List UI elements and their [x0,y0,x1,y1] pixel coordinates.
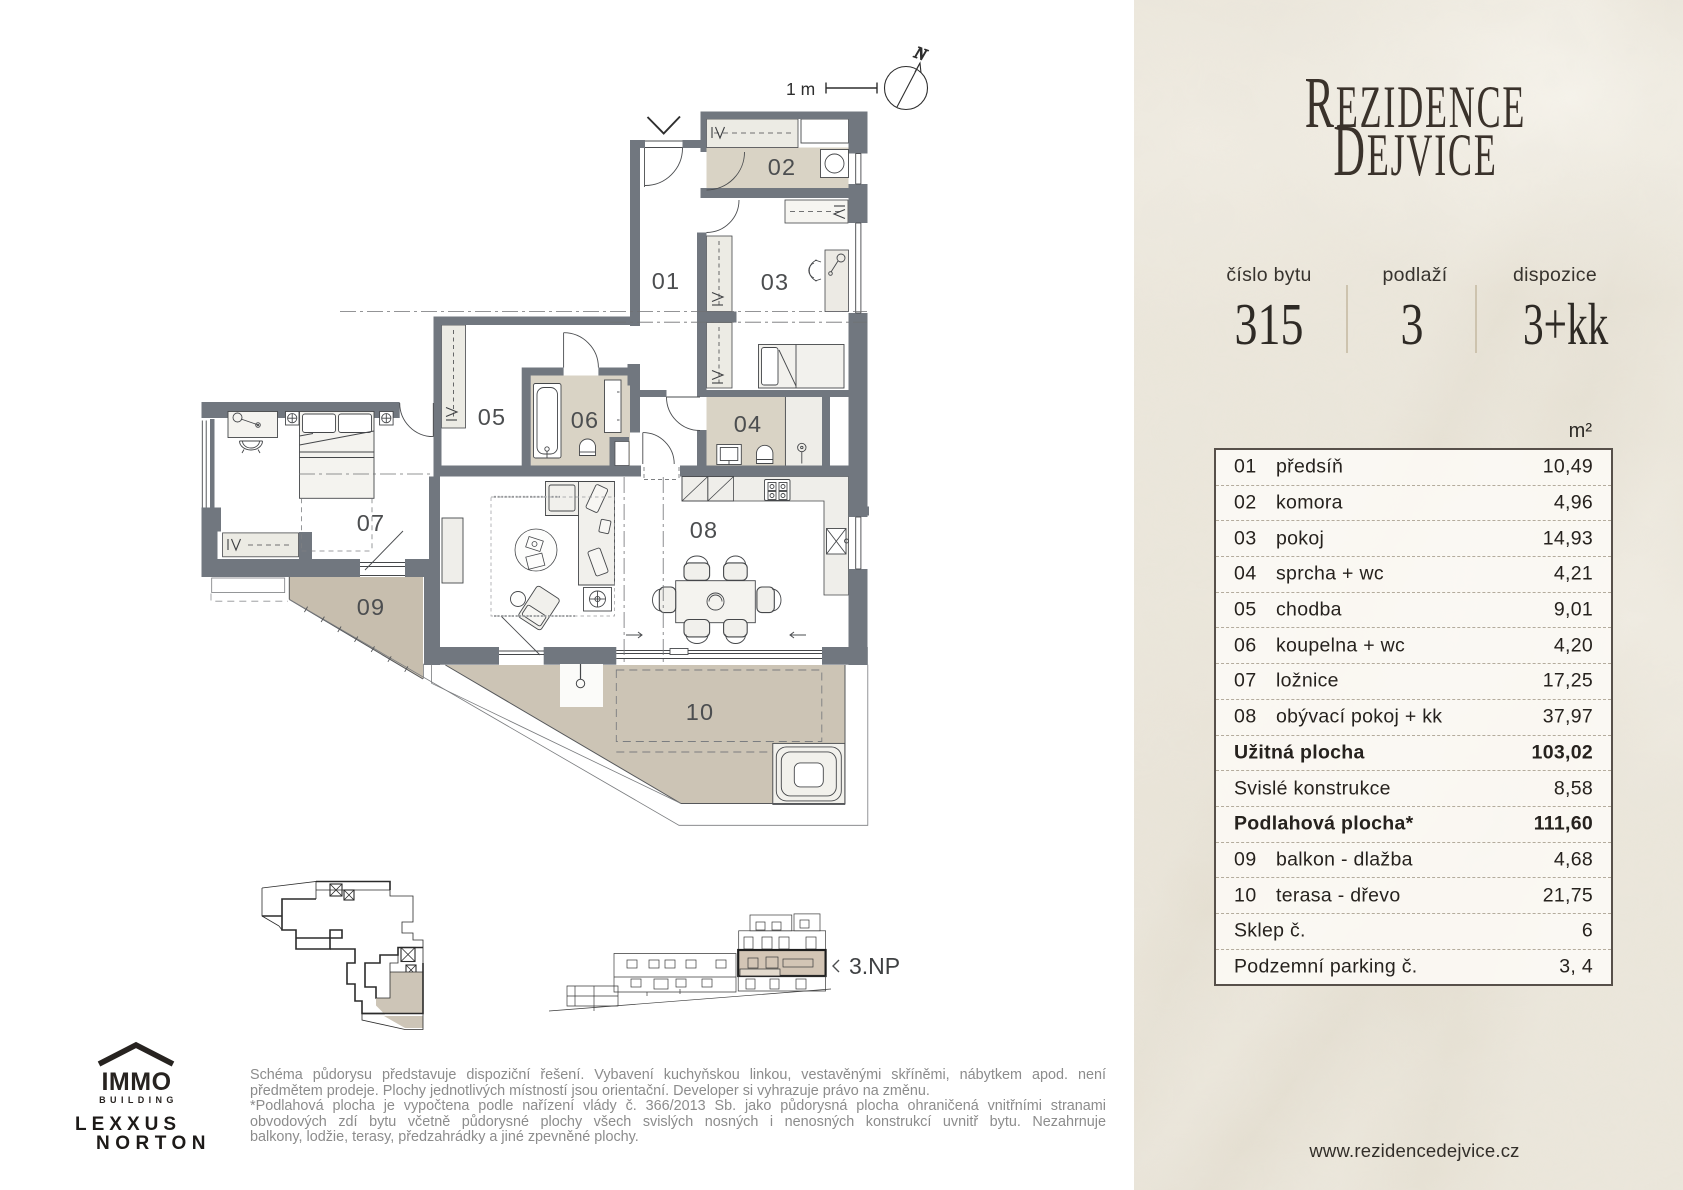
svg-text:03: 03 [761,269,790,295]
svg-text:N: N [911,42,931,65]
svg-text:07: 07 [357,510,386,536]
svg-text:1 m: 1 m [786,79,815,99]
svg-text:10: 10 [686,699,715,725]
svg-text:04: 04 [734,411,763,437]
svg-text:01: 01 [652,268,681,294]
svg-text:3.NP: 3.NP [849,953,900,979]
svg-text:08: 08 [690,517,719,543]
svg-text:09: 09 [357,594,386,620]
svg-text:06: 06 [571,407,600,433]
svg-text:05: 05 [478,404,507,430]
svg-text:02: 02 [768,154,797,180]
